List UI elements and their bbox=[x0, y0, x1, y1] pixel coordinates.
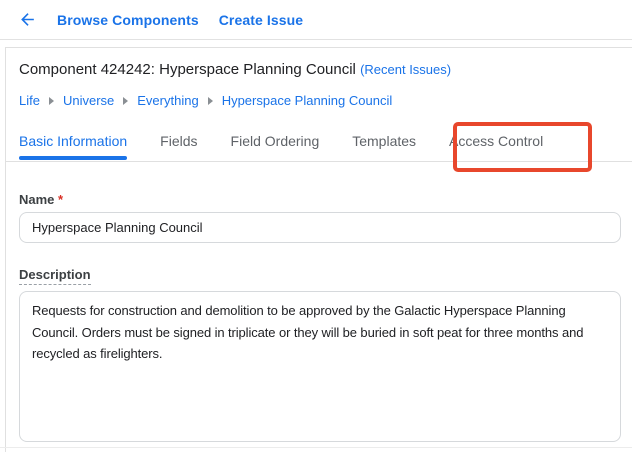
breadcrumb-item-hyperspace-planning-council[interactable]: Hyperspace Planning Council bbox=[222, 93, 393, 109]
browse-components-link[interactable]: Browse Components bbox=[57, 12, 199, 28]
back-button[interactable] bbox=[18, 10, 37, 29]
tab-bar: Basic Information Fields Field Ordering … bbox=[19, 132, 543, 150]
name-input[interactable] bbox=[19, 212, 621, 243]
recent-issues-link[interactable]: (Recent Issues) bbox=[360, 62, 451, 77]
page-title: Component 424242: Hyperspace Planning Co… bbox=[19, 61, 356, 78]
top-toolbar: Browse Components Create Issue bbox=[0, 0, 632, 40]
tab-templates[interactable]: Templates bbox=[352, 132, 416, 150]
tab-basic-information[interactable]: Basic Information bbox=[19, 132, 127, 150]
description-textarea[interactable]: Requests for construction and demolition… bbox=[19, 291, 621, 442]
tab-bar-divider bbox=[6, 161, 632, 162]
tab-field-ordering[interactable]: Field Ordering bbox=[231, 132, 320, 150]
bottom-divider bbox=[0, 447, 632, 448]
chevron-right-icon bbox=[208, 97, 213, 105]
description-field-label: Description bbox=[19, 268, 621, 285]
chevron-right-icon bbox=[49, 97, 54, 105]
breadcrumb: Life Universe Everything Hyperspace Plan… bbox=[19, 93, 632, 109]
tab-fields[interactable]: Fields bbox=[160, 132, 197, 150]
chevron-right-icon bbox=[123, 97, 128, 105]
breadcrumb-item-universe[interactable]: Universe bbox=[63, 93, 114, 109]
basic-information-form: Name * Description Requests for construc… bbox=[19, 193, 621, 442]
main-panel: Component 424242: Hyperspace Planning Co… bbox=[5, 47, 632, 452]
breadcrumb-item-life[interactable]: Life bbox=[19, 93, 40, 109]
arrow-back-icon bbox=[18, 10, 37, 29]
component-header: Component 424242: Hyperspace Planning Co… bbox=[19, 60, 632, 80]
create-issue-link[interactable]: Create Issue bbox=[219, 12, 303, 28]
description-label-text: Description bbox=[19, 268, 91, 285]
name-field-label: Name * bbox=[19, 193, 621, 207]
breadcrumb-item-everything[interactable]: Everything bbox=[137, 93, 198, 109]
required-marker: * bbox=[58, 192, 63, 207]
tab-access-control[interactable]: Access Control bbox=[449, 132, 543, 150]
name-label-text: Name bbox=[19, 192, 54, 207]
